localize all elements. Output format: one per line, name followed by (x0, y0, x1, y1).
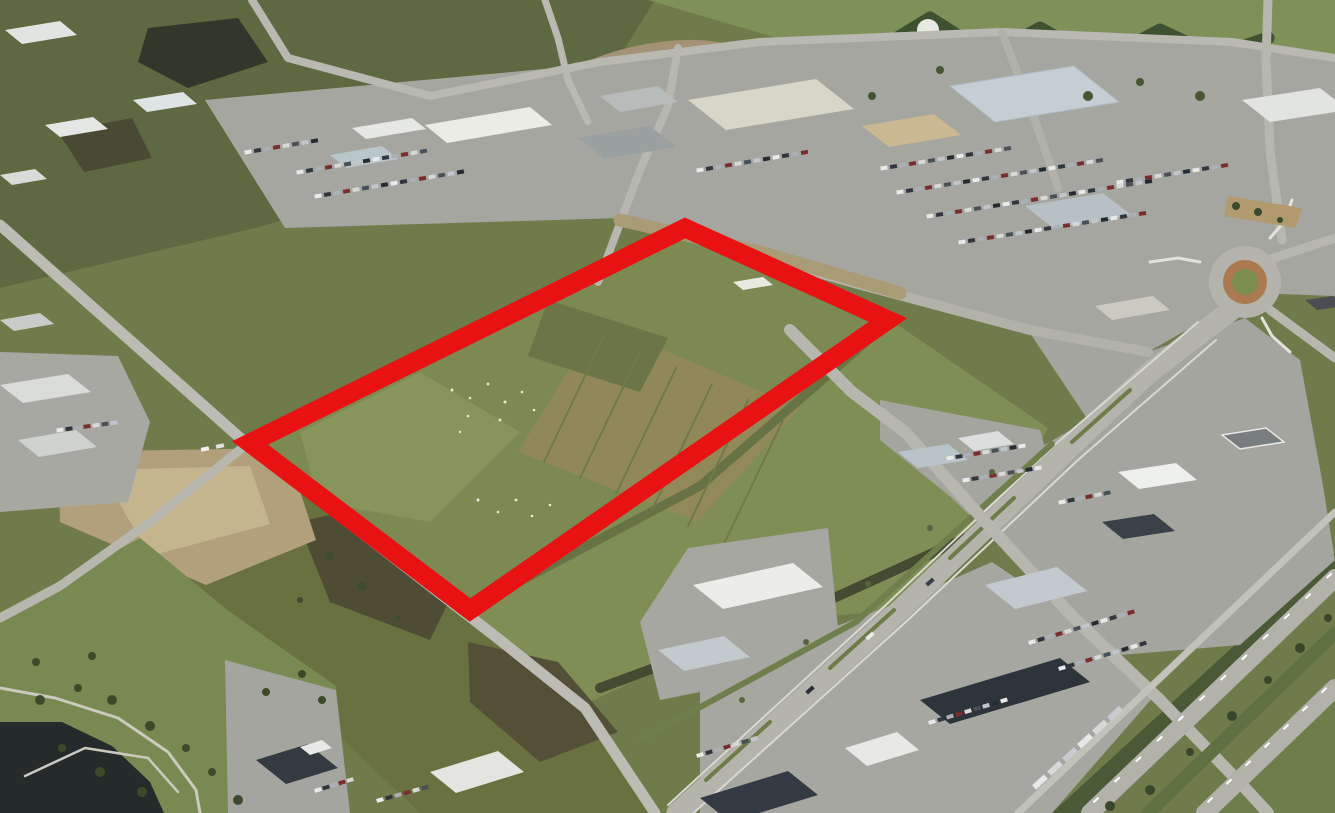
roundabout-center-green (1232, 269, 1258, 295)
aerial-photo-canvas (0, 0, 1335, 813)
aerial-photo (0, 0, 1335, 813)
